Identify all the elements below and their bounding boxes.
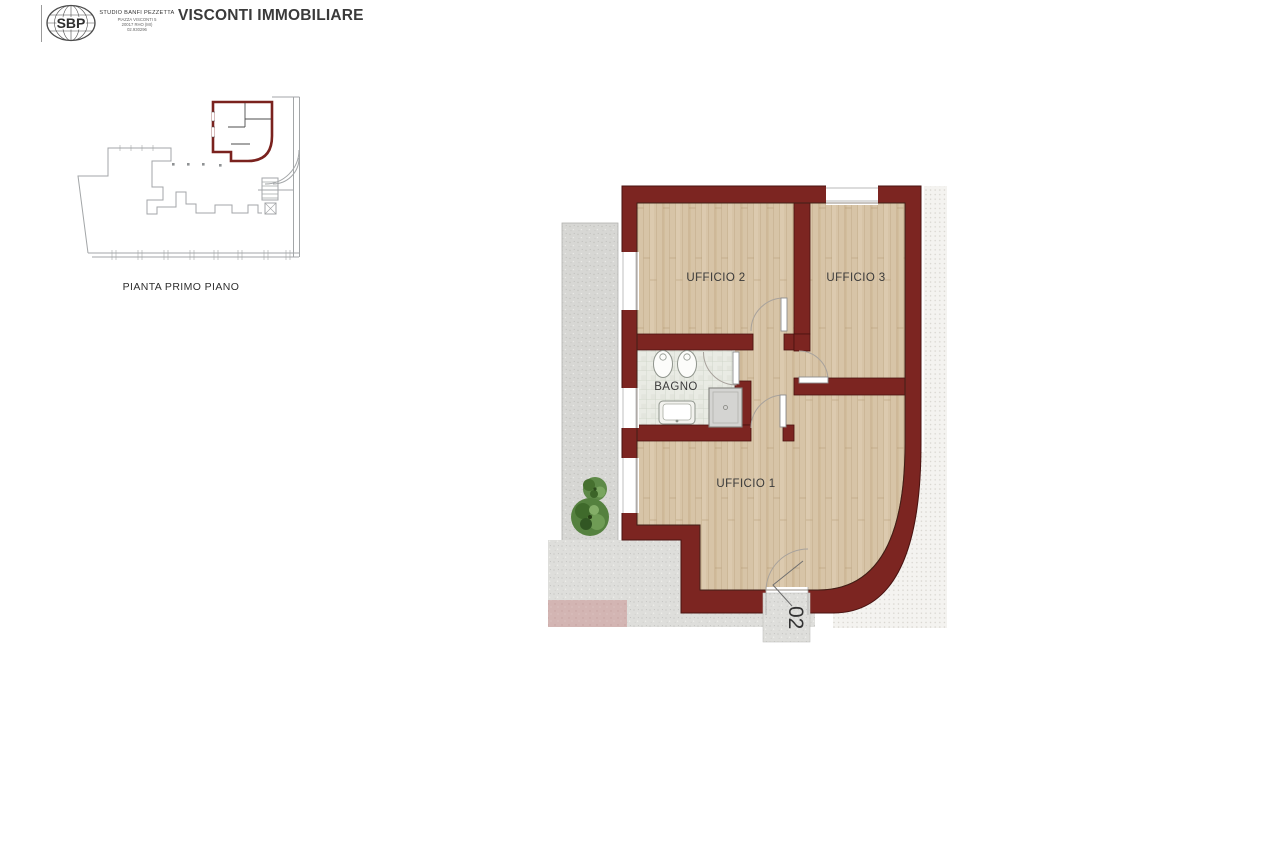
toilet-icon [678, 351, 697, 378]
door-leaf-hall [780, 395, 786, 427]
tree-icon-large [571, 498, 609, 536]
door-leaf-ufficio2 [781, 298, 787, 331]
tree-icon-small [583, 477, 607, 501]
entrance-number: 02 [784, 606, 807, 629]
room-label-ufficio-2: UFFICIO 2 [686, 272, 745, 284]
pink-paving-area [548, 600, 627, 627]
shower-icon [709, 388, 742, 427]
room-label-ufficio-3: UFFICIO 3 [826, 272, 885, 284]
main-floor-plan: UFFICIO 2 UFFICIO 3 BAGNO UFFICIO 1 02 [0, 0, 1280, 855]
room-label-ufficio-1: UFFICIO 1 [716, 478, 775, 490]
dotted-area-right [924, 186, 947, 471]
door-leaf-bagno [733, 352, 739, 384]
floor-plan-page: SBP STUDIO BANFI PEZZETTA PIAZZA VISCONT… [0, 0, 1280, 855]
door-leaf-ufficio3 [799, 377, 828, 383]
bidet-icon [654, 351, 673, 378]
room-label-bagno: BAGNO [654, 381, 698, 393]
